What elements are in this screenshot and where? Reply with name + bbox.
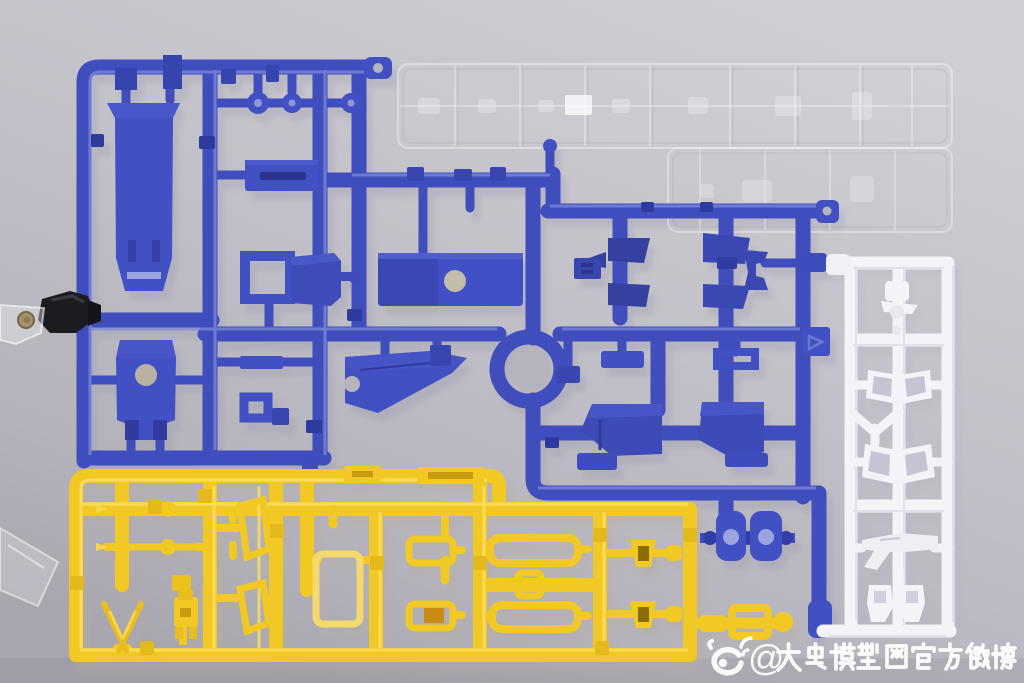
svg-text:@: @ xyxy=(748,637,785,678)
